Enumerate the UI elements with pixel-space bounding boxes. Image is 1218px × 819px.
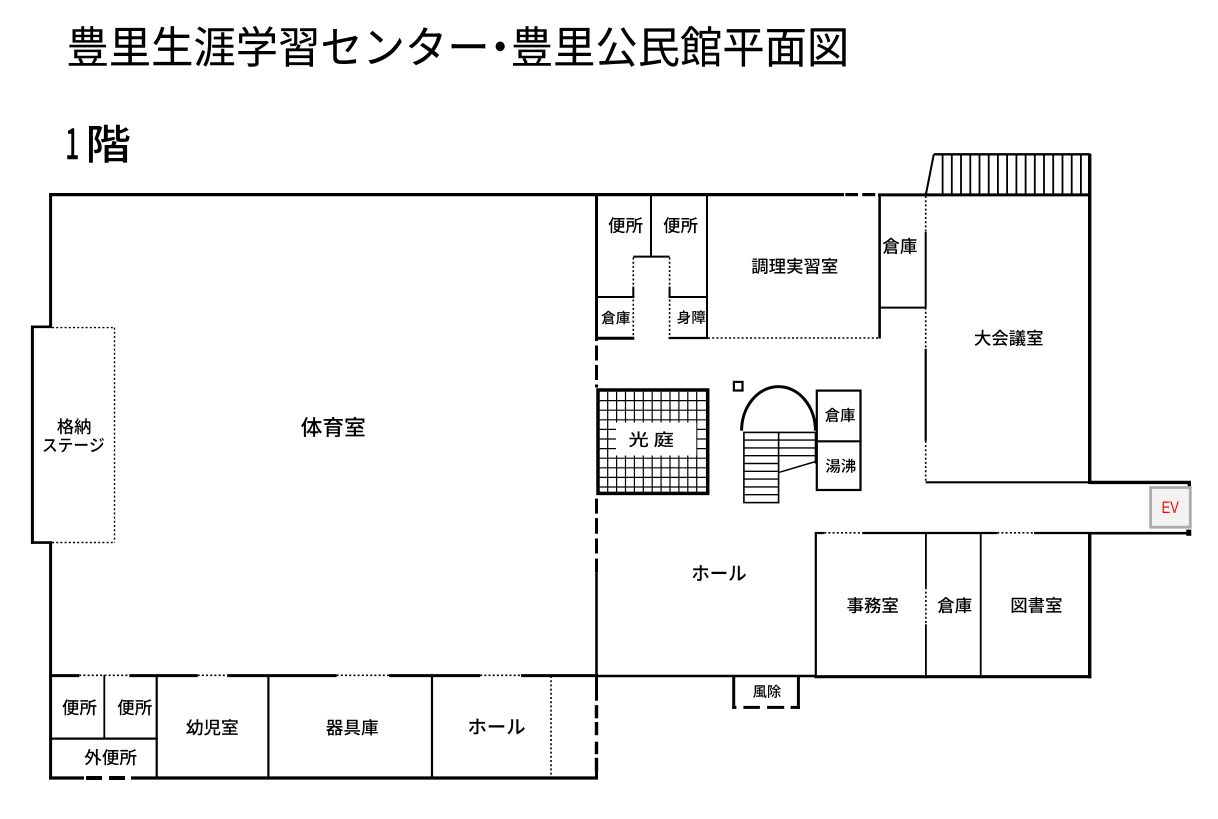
svg-text:EV: EV bbox=[1162, 500, 1179, 518]
